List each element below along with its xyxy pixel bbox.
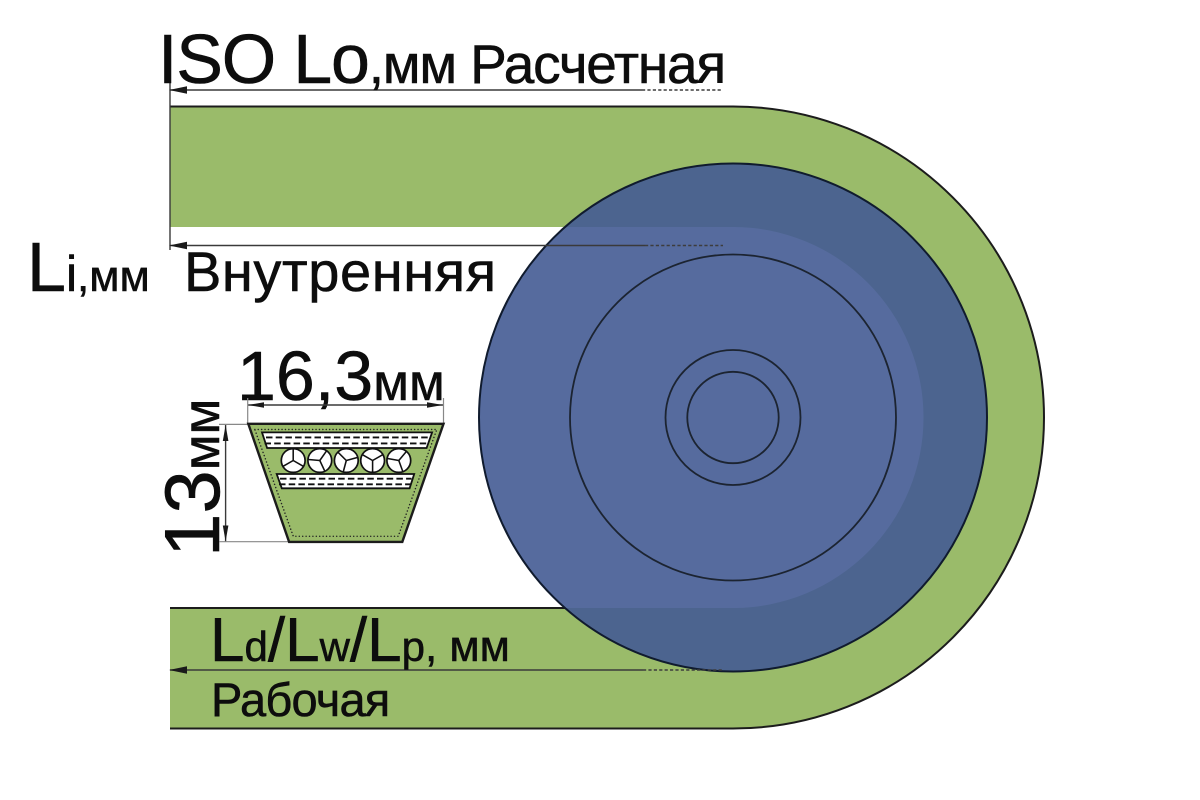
- svg-text:Рабочая: Рабочая: [211, 673, 389, 726]
